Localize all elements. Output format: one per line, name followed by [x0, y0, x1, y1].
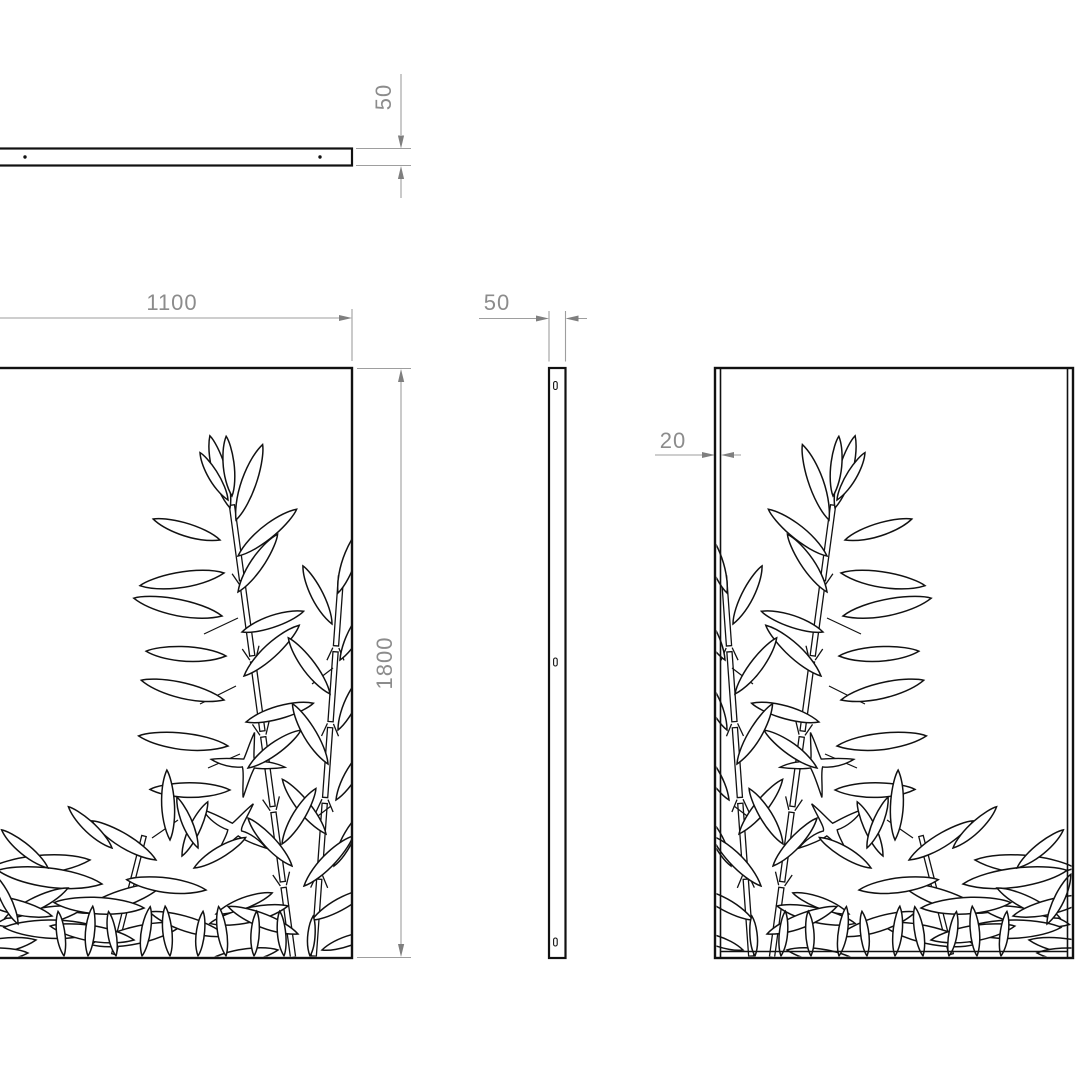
side-view — [549, 368, 566, 958]
arrowhead-left — [721, 452, 734, 458]
dim-label-thickness: 50 — [371, 84, 396, 110]
arrowhead-left — [566, 316, 579, 322]
mounting-slot — [554, 382, 558, 390]
arrowhead-right — [536, 316, 549, 322]
back-view — [685, 368, 1080, 967]
front-view — [0, 368, 380, 967]
arrowhead-right — [339, 315, 352, 321]
back-bamboo — [685, 434, 1080, 967]
arrowhead-up — [398, 369, 404, 382]
dim-label-flange: 20 — [660, 428, 686, 453]
dim-panel-thickness: 50 — [356, 74, 411, 198]
dim-label-height: 1800 — [372, 637, 397, 690]
dim-label-side-depth: 50 — [484, 290, 510, 315]
dim-panel-height: 1800 — [357, 369, 411, 958]
arrowhead-up — [398, 166, 404, 179]
arrowhead-down — [398, 944, 404, 957]
dim-panel-width: 1100 — [0, 290, 352, 361]
dim-side-depth: 50 — [479, 290, 587, 362]
arrowhead-down — [398, 136, 404, 149]
mounting-slot — [554, 658, 558, 666]
dim-label-width: 1100 — [146, 290, 197, 315]
mounting-slot — [554, 938, 558, 946]
mounting-hole — [23, 155, 26, 158]
dim-flange-depth: 20 — [655, 428, 741, 458]
drawing-canvas: 50 1100 1800 50 20 — [0, 0, 1080, 1080]
arrowhead-right — [702, 452, 715, 458]
technical-drawing: 50 1100 1800 50 20 — [0, 0, 1080, 1080]
top-view — [0, 149, 352, 166]
mounting-hole — [318, 155, 321, 158]
front-bamboo — [0, 434, 380, 967]
